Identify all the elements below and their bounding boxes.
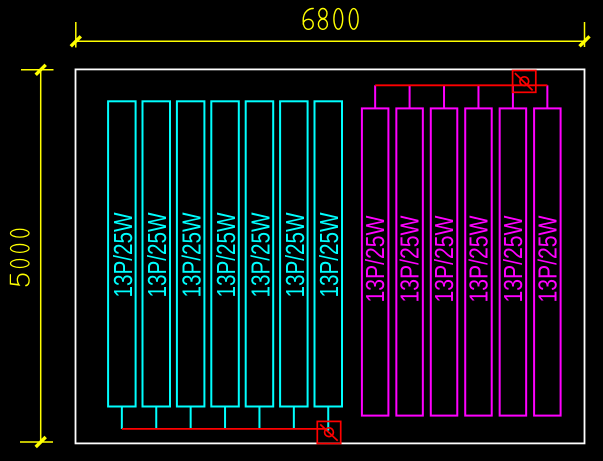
svg-text:13P/25W: 13P/25W [395, 215, 425, 302]
svg-text:13P/25W: 13P/25W [463, 215, 493, 302]
svg-text:13P/25W: 13P/25W [498, 215, 528, 302]
svg-text:13P/25W: 13P/25W [280, 212, 310, 297]
svg-text:13P/25W: 13P/25W [245, 212, 275, 297]
svg-text:13P/25W: 13P/25W [211, 212, 241, 297]
svg-text:13P/25W: 13P/25W [142, 212, 172, 297]
svg-text:13P/25W: 13P/25W [108, 212, 138, 297]
svg-text:13P/25W: 13P/25W [314, 212, 344, 297]
svg-text:13P/25W: 13P/25W [532, 215, 562, 302]
svg-text:13P/25W: 13P/25W [177, 212, 207, 297]
svg-text:13P/25W: 13P/25W [429, 215, 459, 302]
svg-text:13P/25W: 13P/25W [360, 215, 390, 302]
